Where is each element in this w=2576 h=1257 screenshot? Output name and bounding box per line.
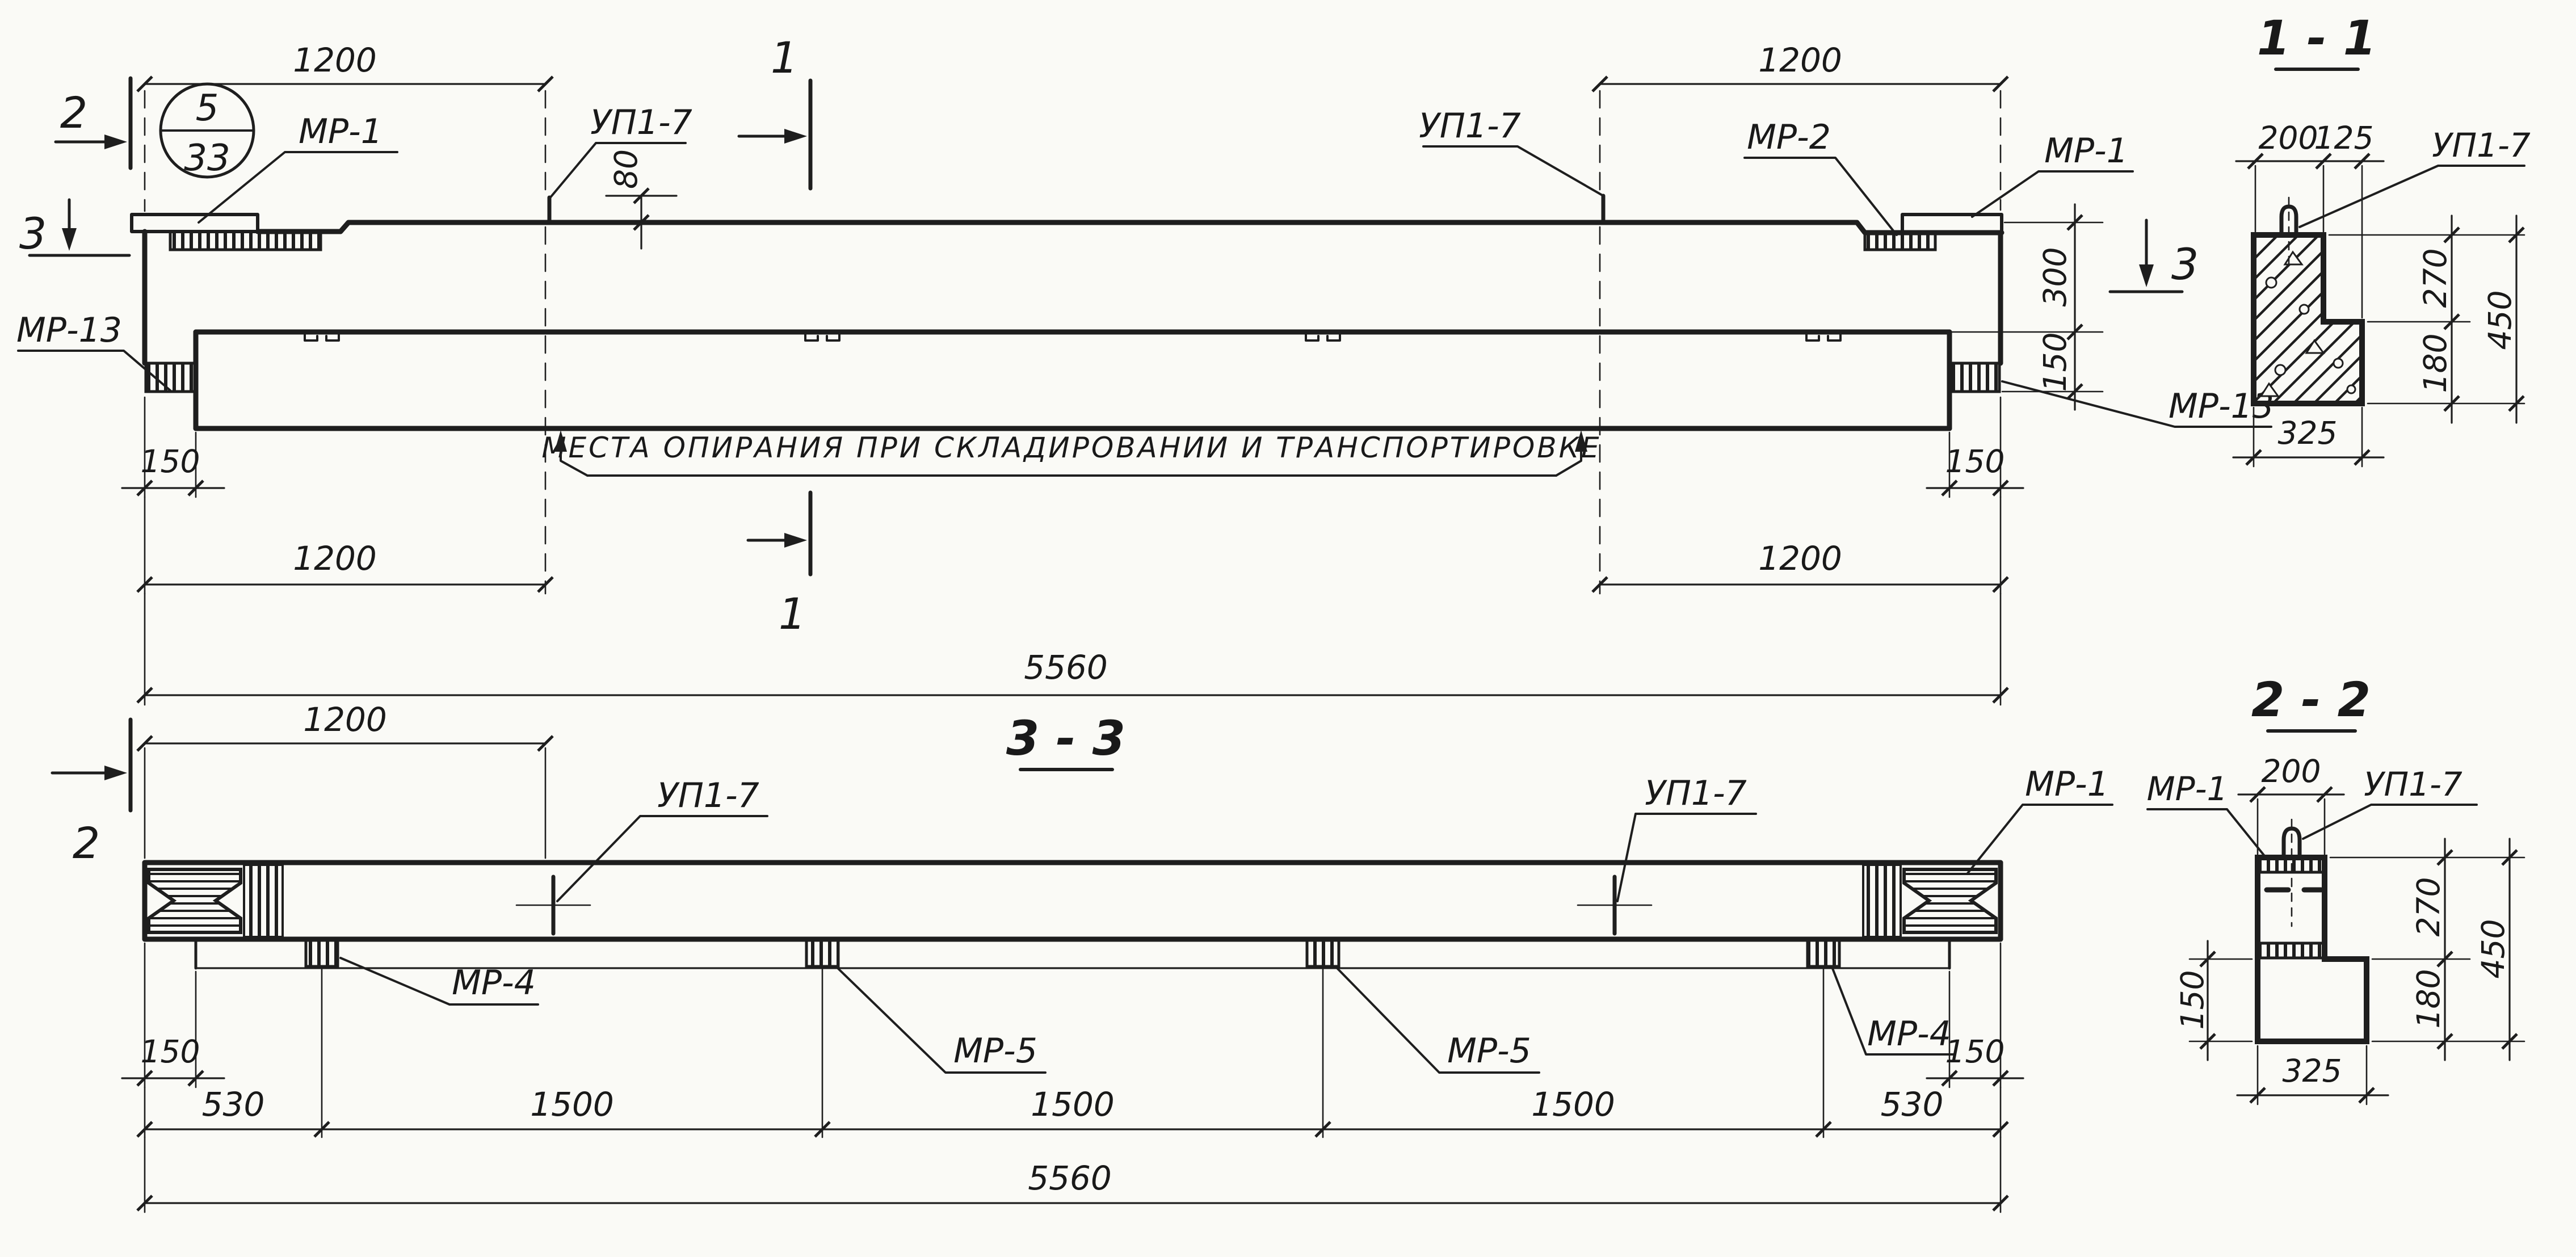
dim-bv-top-left-1200: 1200	[137, 700, 553, 858]
label-mr5-left: МР-5	[837, 967, 1045, 1073]
svg-text:МР-5: МР-5	[953, 1031, 1037, 1071]
svg-text:УП1-7: УП1-7	[1645, 773, 1747, 813]
svg-text:МР-13: МР-13	[16, 310, 122, 350]
leader-line	[2300, 166, 2524, 227]
label-mr1-right: МР-1	[1972, 131, 2133, 217]
engineering-drawing: 5 33 МР-1 УП1-7 80 УП1-7 МР-2	[0, 0, 2576, 1257]
beam-top-edge	[258, 222, 2002, 233]
mr1-left-anchor-hatch	[170, 232, 321, 250]
label-up17-right-bv: УП1-7	[1617, 773, 1756, 901]
leader-line	[1972, 171, 2133, 217]
label-up17-left-bv: УП1-7	[557, 776, 767, 901]
mr1-bottom-plate-edge	[2258, 943, 2325, 958]
section-arrow	[104, 134, 127, 149]
drawing-sheet: 5 33 МР-1 УП1-7 80 УП1-7 МР-2	[0, 0, 2576, 1257]
svg-text:1: 1	[771, 32, 798, 83]
svg-text:УП1-7: УП1-7	[657, 776, 759, 815]
dim-value: 270	[2410, 877, 2447, 937]
dim-value: 1200	[293, 41, 377, 79]
anchor-hatch-band	[244, 865, 283, 937]
dim-bv-left-150: 150	[122, 943, 224, 1087]
section-arrow	[784, 129, 807, 144]
label-up17-right: УП1-7	[1419, 106, 1603, 222]
label-mr4-right: МР-4	[1832, 967, 1955, 1054]
section-title: 1 - 1	[2257, 10, 2376, 69]
svg-text:УП1-7: УП1-7	[2364, 765, 2462, 804]
section-marker-2-top: 2	[56, 78, 131, 168]
dim-bottom-right-1200: 1200	[1592, 227, 2008, 594]
concrete-section-outline	[2254, 235, 2362, 403]
svg-text:1 - 1: 1 - 1	[2257, 10, 2376, 66]
dim-bottom-right-150: 150	[1927, 397, 2023, 497]
leader-line	[2148, 809, 2264, 856]
dim-value: 150	[141, 1033, 200, 1070]
label-mr1-s22: МР-1	[2147, 770, 2264, 856]
dim-value: 200	[2259, 120, 2318, 156]
section-marker-2-bottom: 2	[52, 720, 131, 868]
dim-value: 530	[1881, 1085, 1944, 1124]
svg-text:УП1-7: УП1-7	[1419, 106, 1521, 146]
dim-value: 125	[2314, 120, 2374, 156]
svg-text:МР-4: МР-4	[1867, 1014, 1951, 1054]
svg-text:МР-1: МР-1	[2147, 770, 2228, 808]
leader-line	[2303, 805, 2477, 839]
section-title: 2 - 2	[2251, 672, 2371, 731]
beam-outline-bottom-view	[145, 863, 2001, 968]
dim-bv-total-5560: 5560	[137, 1137, 2008, 1212]
mr1-left-end-anchor	[149, 865, 283, 937]
dim-value: 180	[2417, 334, 2453, 393]
dim-value: 150	[2037, 333, 2073, 392]
svg-text:3: 3	[19, 208, 47, 259]
dim-value: 1200	[1758, 539, 1842, 578]
mr5-left-plate	[806, 940, 838, 966]
svg-text:МР-1: МР-1	[299, 112, 383, 152]
beam-outline	[145, 222, 2002, 428]
mr4-left-plate	[306, 940, 338, 966]
position-number: 5	[196, 87, 219, 129]
mr4-right-plate	[1808, 940, 1839, 966]
section-arrow	[784, 533, 807, 548]
dim-value: 150	[1945, 1033, 2005, 1070]
label-mr4-left: МР-4	[341, 958, 538, 1004]
mr2-recessed-plate-hatch	[1865, 233, 1935, 250]
svg-text:МР-5: МР-5	[1447, 1031, 1531, 1071]
dim-value: 450	[2475, 919, 2511, 979]
lifting-loop-mark-left	[516, 877, 590, 934]
svg-text:УП1-7: УП1-7	[2432, 126, 2531, 165]
leader-line	[1617, 814, 1756, 901]
section-marker-3-left: 3	[19, 200, 129, 259]
dim-value: 1500	[1031, 1085, 1115, 1124]
anchor-bowtie	[1904, 869, 1996, 932]
dim-value: 150	[2174, 970, 2211, 1030]
dim-value: 1200	[1758, 41, 1842, 79]
svg-text:МР-1: МР-1	[2025, 764, 2109, 804]
section-2-2: 2 - 2 200 МР-1 УП1-7	[2147, 672, 2524, 1104]
label-mr2: МР-2	[1745, 117, 1897, 235]
position-circle: 5 33	[161, 84, 254, 179]
section-marker-1-bottom: 1	[748, 493, 810, 639]
mr13-right-plate-hatch	[1951, 363, 1999, 392]
dim-value: 270	[2417, 249, 2453, 308]
dim-hook-80: 80	[606, 149, 676, 249]
svg-text:3 - 3: 3 - 3	[1006, 711, 1125, 766]
anchor-hatch-band	[1863, 865, 1901, 937]
bottom-view-3-3: 3 - 3	[122, 700, 2112, 1212]
dim-value: 325	[2278, 415, 2338, 451]
anchor-bowtie	[149, 869, 241, 932]
svg-text:МР-2: МР-2	[1747, 117, 1831, 157]
section-marker-1-top: 1	[739, 32, 810, 188]
svg-text:МР-4: МР-4	[452, 963, 536, 1003]
svg-text:3: 3	[2171, 239, 2199, 289]
dim-value: 1200	[293, 539, 377, 578]
dim-total-5560-top-view: 5560	[137, 594, 2008, 705]
section-1-1: 1 - 1 200 125 УП1-7	[2233, 10, 2531, 466]
label-up17-s22: УП1-7	[2303, 765, 2477, 839]
dim-s22-325: 325	[2237, 1046, 2388, 1104]
svg-text:УП1-7: УП1-7	[590, 103, 692, 142]
dim-value: 325	[2283, 1053, 2342, 1089]
label-mr1-bv: МР-1	[1967, 764, 2112, 874]
mr1-left-plate	[132, 215, 258, 232]
svg-text:2: 2	[73, 818, 100, 868]
dim-bv-chain: 530 1500 1500 1500 530	[137, 968, 2008, 1137]
dim-value: 450	[2482, 291, 2518, 350]
mr1-right-end-anchor	[1863, 865, 1996, 937]
lifting-loop-mark-right	[1578, 877, 1652, 934]
storage-note: МЕСТА ОПИРАНИЯ ПРИ СКЛАДИРОВАНИИ И ТРАНС…	[541, 430, 1601, 476]
mr1-right-plate	[1902, 215, 2002, 233]
dim-value: 5560	[1028, 1159, 1112, 1197]
dim-value: 5560	[1024, 648, 1108, 687]
dim-value: 530	[202, 1085, 265, 1124]
dim-value: 180	[2410, 969, 2447, 1029]
dim-value: 200	[2262, 753, 2321, 789]
mr5-right-plate	[1307, 940, 1339, 966]
dim-value: 150	[1945, 443, 2005, 480]
dim-value: 300	[2037, 247, 2073, 307]
svg-text:1: 1	[779, 588, 806, 639]
dim-s22-left-150: 150	[2174, 941, 2252, 1060]
dim-value: 1500	[530, 1085, 614, 1124]
svg-text:2 - 2: 2 - 2	[2251, 672, 2371, 728]
section-arrow	[62, 228, 77, 251]
dim-value: 1500	[1531, 1085, 1615, 1124]
sheet-number: 33	[184, 137, 230, 179]
dim-value: 150	[141, 443, 200, 480]
note-text: МЕСТА ОПИРАНИЯ ПРИ СКЛАДИРОВАНИИ И ТРАНС…	[541, 431, 1601, 464]
dim-value: 80	[608, 149, 644, 189]
dim-bottom-left-1200: 1200	[137, 227, 553, 594]
label-mr5-right: МР-5	[1336, 967, 1539, 1073]
dim-value: 1200	[303, 700, 387, 739]
svg-text:МР-1: МР-1	[2044, 131, 2128, 171]
leader-line	[1423, 146, 1603, 196]
dim-bottom-left-150: 150	[122, 397, 224, 497]
view-title: 3 - 3	[1006, 711, 1125, 770]
section-arrow	[104, 766, 127, 780]
leader-line	[557, 816, 767, 901]
section-arrow	[2139, 264, 2154, 287]
svg-text:2: 2	[60, 87, 87, 138]
section-marker-3-right: 3	[2110, 220, 2199, 292]
